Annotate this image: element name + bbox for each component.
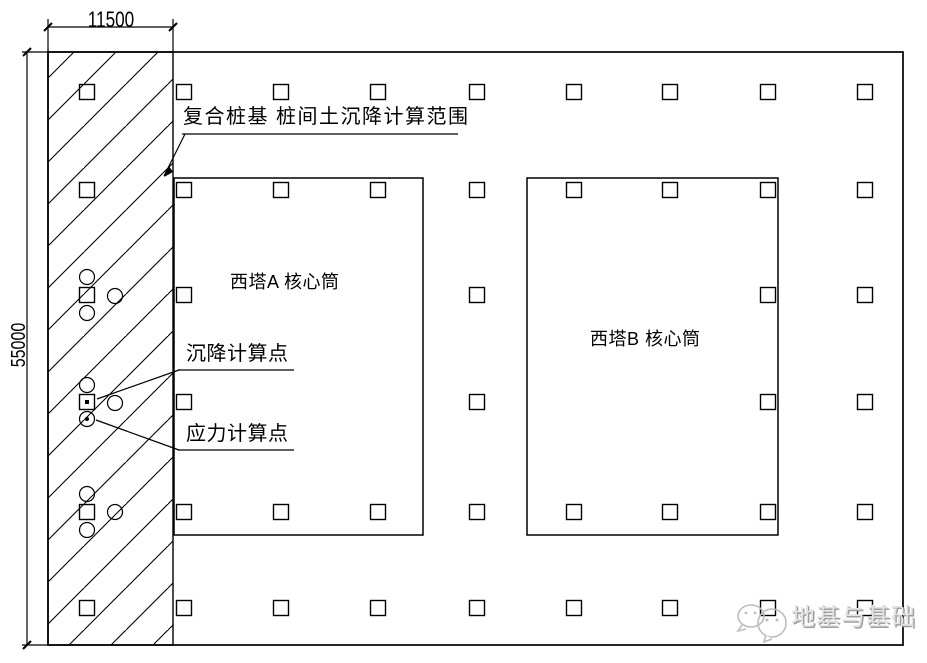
pile-square [371, 85, 386, 100]
pile-square [470, 395, 485, 410]
pile-square [274, 85, 289, 100]
pile-square [177, 288, 192, 303]
pile-square [470, 183, 485, 198]
stress-point-dot [85, 417, 89, 421]
pile-square [858, 183, 873, 198]
pile-square [177, 601, 192, 616]
pile-square [274, 601, 289, 616]
dimension-left-value: 55000 [8, 319, 28, 370]
pile-square [470, 85, 485, 100]
range-label: 复合桩基 桩间土沉降计算范围 [183, 106, 470, 128]
pile-square [567, 85, 582, 100]
cad-foundation-plan: 11500 55000 复合桩基 桩间土沉降计算范围 西塔A 核心筒 西塔B 核… [0, 0, 927, 663]
pile-square [858, 85, 873, 100]
drawing-canvas [0, 0, 927, 663]
pile-square [858, 288, 873, 303]
pile-square [274, 505, 289, 520]
pile-square [567, 505, 582, 520]
pile-square [761, 505, 776, 520]
pile-square [858, 505, 873, 520]
pile-square [761, 183, 776, 198]
pile-square [177, 395, 192, 410]
pile-square [177, 183, 192, 198]
range-leader [164, 134, 458, 177]
watermark-text: 地基与基础 [791, 605, 916, 631]
pile-square [177, 85, 192, 100]
pile-square [470, 601, 485, 616]
tower-b-label: 西塔B 核心筒 [590, 330, 701, 350]
tower-a-label: 西塔A 核心筒 [230, 273, 340, 293]
settlement-point-dot [85, 400, 89, 404]
pile-square [470, 288, 485, 303]
settlement-point-label: 沉降计算点 [186, 343, 289, 365]
pile-square [371, 183, 386, 198]
pile-square [663, 183, 678, 198]
pile-square [761, 85, 776, 100]
pile-square [761, 288, 776, 303]
dimension-top-value: 11500 [87, 8, 135, 32]
pile-square [761, 395, 776, 410]
pile-square [858, 395, 873, 410]
chat-bubbles-icon [738, 605, 786, 642]
pile-square [663, 85, 678, 100]
tower-b-outline [527, 178, 778, 535]
foundation-plan-outline [48, 52, 903, 645]
pile-square [371, 505, 386, 520]
pile-square [274, 183, 289, 198]
stress-point-label: 应力计算点 [186, 423, 289, 445]
pile-square [663, 601, 678, 616]
pile-square [567, 183, 582, 198]
soil-strip-hatched [48, 52, 173, 645]
pile-square [567, 601, 582, 616]
pile-square [663, 505, 678, 520]
pile-square [177, 505, 192, 520]
pile-square [371, 601, 386, 616]
pile-square [470, 505, 485, 520]
